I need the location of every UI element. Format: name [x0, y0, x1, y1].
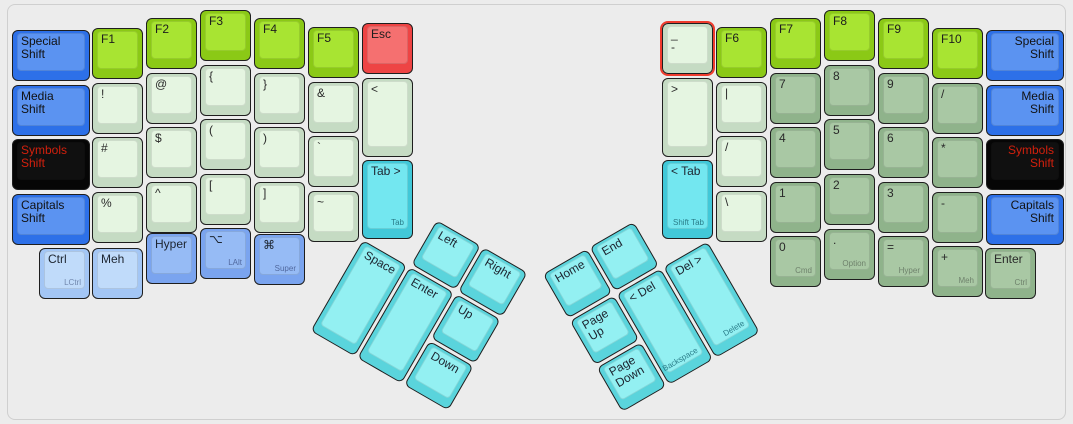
key-label: ! [101, 88, 104, 101]
key-num-7[interactable]: 7 [770, 73, 821, 124]
key-num-slash[interactable]: / [932, 83, 983, 134]
key-num-2[interactable]: 2 [824, 174, 875, 225]
key-label: 2 [833, 179, 840, 192]
key-label: \ [725, 196, 728, 209]
key-pipe[interactable]: | [716, 82, 767, 133]
key-label: 6 [887, 132, 894, 145]
key-label: F6 [725, 32, 739, 45]
key-label: * [941, 142, 946, 155]
key-f6[interactable]: F6 [716, 27, 767, 78]
key-f9[interactable]: F9 [878, 18, 929, 69]
key-label: Hyper [155, 238, 187, 251]
key-label: > [671, 83, 678, 96]
key-sublabel: Option [842, 259, 866, 268]
key-shift-tab[interactable]: < TabShift Tab [662, 160, 713, 239]
key-label: 9 [887, 78, 894, 91]
key-label: Ctrl [48, 253, 67, 266]
key-backslash[interactable]: \ [716, 191, 767, 242]
key-close-brace[interactable]: } [254, 73, 305, 124]
key-num-6[interactable]: 6 [878, 127, 929, 178]
key-label: 7 [779, 78, 786, 91]
key-f3[interactable]: F3 [200, 10, 251, 61]
key-label: Meh [101, 253, 124, 266]
keyboard-layout-canvas: LeftRightSpaceEnterUpDown HomeEndPage Up… [0, 0, 1073, 424]
key-label: & [317, 87, 325, 100]
key-label: F8 [833, 15, 847, 28]
key-label: { [209, 70, 213, 83]
key-symbols-shift-right[interactable]: Symbols Shift [986, 139, 1064, 190]
key-num-8[interactable]: 8 [824, 65, 875, 116]
key-label: 3 [887, 187, 894, 200]
key-label: [ [209, 179, 212, 192]
key-capitals-shift-left[interactable]: Capitals Shift [12, 194, 90, 245]
key-label: ^ [155, 187, 161, 200]
key-esc[interactable]: Esc [362, 23, 413, 74]
key-hash[interactable]: # [92, 137, 143, 188]
key-label: Capitals Shift [1011, 199, 1054, 225]
key-symbols-shift-left[interactable]: Symbols Shift [12, 139, 90, 190]
key-label: / [725, 141, 728, 154]
key-sublabel: Ctrl [1015, 278, 1027, 287]
key-label: . [833, 234, 836, 247]
key-label: 1 [779, 187, 786, 200]
key-label: # [101, 142, 108, 155]
key-label: 5 [833, 124, 840, 137]
key-percent[interactable]: % [92, 192, 143, 243]
key-label: 8 [833, 70, 840, 83]
key-label: + [941, 251, 948, 264]
key-label: % [101, 197, 112, 210]
key-f5[interactable]: F5 [308, 27, 359, 78]
key-label: Media Shift [1021, 90, 1054, 116]
key-super[interactable]: ⌘Super [254, 234, 305, 285]
key-num-5[interactable]: 5 [824, 119, 875, 170]
key-close-bracket[interactable]: ] [254, 182, 305, 233]
key-f2[interactable]: F2 [146, 18, 197, 69]
key-media-shift-left[interactable]: Media Shift [12, 85, 90, 136]
key-special-shift-right[interactable]: Special Shift [986, 30, 1064, 81]
key-label: @ [155, 78, 167, 91]
key-label: _ - [671, 28, 678, 54]
key-label: ` [317, 141, 321, 154]
key-sublabel: Super [275, 264, 296, 273]
key-label: F2 [155, 23, 169, 36]
key-label: Symbols Shift [21, 144, 67, 170]
key-backtick[interactable]: ` [308, 136, 359, 187]
key-open-brace[interactable]: { [200, 65, 251, 116]
key-meh[interactable]: Meh [92, 248, 143, 299]
key-close-paren[interactable]: ) [254, 127, 305, 178]
key-sublabel: LAlt [228, 258, 242, 267]
key-label: ⌘ [263, 239, 275, 252]
key-label: | [725, 87, 728, 100]
key-sublabel: Cmd [795, 266, 812, 275]
key-label: Symbols Shift [1008, 144, 1054, 170]
key-open-paren[interactable]: ( [200, 119, 251, 170]
key-label: Esc [371, 28, 391, 41]
key-sublabel: Shift Tab [673, 218, 704, 227]
key-num-plus[interactable]: +Meh [932, 246, 983, 297]
key-special-shift-left[interactable]: Special Shift [12, 30, 90, 81]
key-f1[interactable]: F1 [92, 28, 143, 79]
key-label: 4 [779, 132, 786, 145]
key-slash[interactable]: / [716, 136, 767, 187]
key-lalt[interactable]: ⌥LAlt [200, 228, 251, 279]
key-media-shift-right[interactable]: Media Shift [986, 85, 1064, 136]
key-num-1[interactable]: 1 [770, 182, 821, 233]
key-label: $ [155, 132, 162, 145]
key-label: F9 [887, 23, 901, 36]
key-sublabel: Hyper [899, 266, 920, 275]
key-f7[interactable]: F7 [770, 18, 821, 69]
key-num-minus[interactable]: - [932, 192, 983, 243]
key-at[interactable]: @ [146, 73, 197, 124]
key-label: ( [209, 124, 213, 137]
key-num-dot[interactable]: .Option [824, 229, 875, 280]
key-f10[interactable]: F10 [932, 28, 983, 79]
key-num-4[interactable]: 4 [770, 127, 821, 178]
key-ampersand[interactable]: & [308, 82, 359, 133]
key-label: < Tab [671, 165, 700, 178]
key-num-0[interactable]: 0Cmd [770, 236, 821, 287]
key-label: ~ [317, 196, 324, 209]
key-f4[interactable]: F4 [254, 18, 305, 69]
key-label: Media Shift [21, 90, 54, 116]
key-exclamation[interactable]: ! [92, 83, 143, 134]
key-dollar[interactable]: $ [146, 127, 197, 178]
key-hyper-left[interactable]: Hyper [146, 233, 197, 284]
key-enter-right[interactable]: EnterCtrl [985, 248, 1036, 299]
key-greater-than[interactable]: > [662, 78, 713, 157]
key-num-9[interactable]: 9 [878, 73, 929, 124]
key-label: = [887, 241, 894, 254]
key-label: F7 [779, 23, 793, 36]
key-num-equals[interactable]: =Hyper [878, 236, 929, 287]
key-num-3[interactable]: 3 [878, 182, 929, 233]
key-label: Special Shift [21, 35, 60, 61]
key-label: F5 [317, 32, 331, 45]
key-label: F3 [209, 15, 223, 28]
key-label: < [371, 83, 378, 96]
key-label: F1 [101, 33, 115, 46]
key-num-asterisk[interactable]: * [932, 137, 983, 188]
key-lctrl[interactable]: CtrlLCtrl [39, 248, 90, 299]
key-less-than[interactable]: < [362, 78, 413, 157]
key-open-bracket[interactable]: [ [200, 174, 251, 225]
key-label: ] [263, 187, 266, 200]
key-tilde[interactable]: ~ [308, 191, 359, 242]
key-label: / [941, 88, 944, 101]
key-label: ) [263, 132, 267, 145]
key-label: Special Shift [1015, 35, 1054, 61]
key-label: Capitals Shift [21, 199, 64, 225]
key-sublabel: Tab [391, 218, 404, 227]
key-label: 0 [779, 241, 786, 254]
key-tab[interactable]: Tab >Tab [362, 160, 413, 239]
key-sublabel: Meh [958, 276, 974, 285]
key-label: F4 [263, 23, 277, 36]
key-label: - [941, 197, 945, 210]
key-label: F10 [941, 33, 962, 46]
key-caret[interactable]: ^ [146, 182, 197, 233]
key-sublabel: LCtrl [64, 278, 81, 287]
key-f8[interactable]: F8 [824, 10, 875, 61]
key-label: } [263, 78, 267, 91]
key-label: Tab > [371, 165, 401, 178]
key-underscore-hyphen[interactable]: _ - [662, 23, 713, 74]
key-capitals-shift-right[interactable]: Capitals Shift [986, 194, 1064, 245]
key-label: ⌥ [209, 233, 223, 246]
key-label: Enter [994, 253, 1023, 266]
